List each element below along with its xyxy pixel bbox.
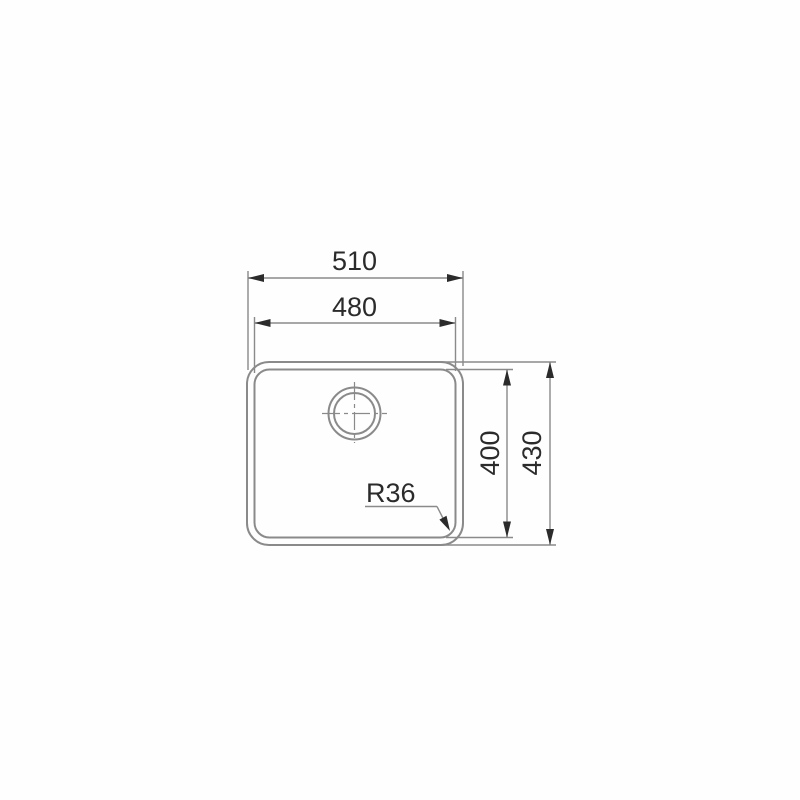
corner-radius-callout: R36 bbox=[365, 478, 450, 531]
drawing-svg: 510 480 400 430 bbox=[0, 0, 800, 800]
arrowhead-top bbox=[503, 370, 511, 386]
arrowhead-left bbox=[248, 274, 264, 282]
sink-dimension-drawing: 510 480 400 430 bbox=[0, 0, 800, 800]
corner-radius-label: R36 bbox=[366, 478, 416, 508]
leader-arrowhead bbox=[439, 516, 450, 531]
dimension-label-outer-width: 510 bbox=[332, 246, 377, 276]
arrowhead-bottom bbox=[503, 522, 511, 538]
drain bbox=[322, 382, 387, 443]
arrowhead-left bbox=[255, 319, 271, 327]
dimension-label-inner-height: 400 bbox=[475, 430, 505, 475]
arrowhead-bottom bbox=[546, 529, 554, 545]
arrowhead-right bbox=[440, 319, 456, 327]
arrowhead-right bbox=[447, 274, 463, 282]
dimension-inner-width: 480 bbox=[255, 292, 456, 373]
arrowhead-top bbox=[546, 362, 554, 378]
dimension-label-inner-width: 480 bbox=[332, 292, 377, 322]
dimension-label-outer-height: 430 bbox=[517, 430, 547, 475]
